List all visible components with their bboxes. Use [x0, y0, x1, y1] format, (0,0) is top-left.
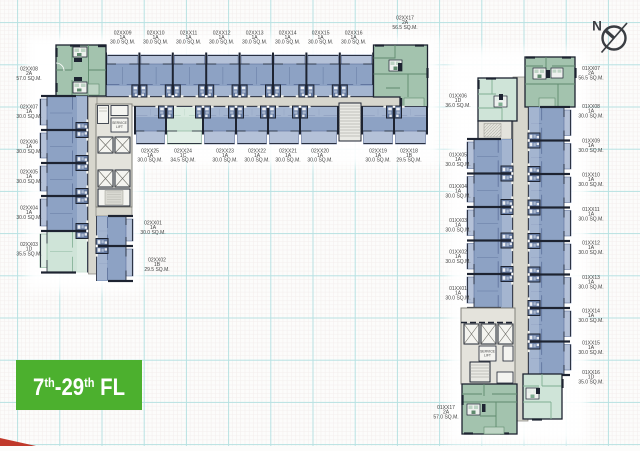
svg-text:30.0 SQ.M.: 30.0 SQ.M. — [242, 40, 267, 46]
svg-text:30.0 SQ.M.: 30.0 SQ.M. — [308, 40, 333, 46]
svg-text:30.0 SQ.M.: 30.0 SQ.M. — [445, 227, 470, 233]
svg-text:LIFT: LIFT — [484, 353, 491, 357]
svg-text:57.0 SQ.M.: 57.0 SQ.M. — [16, 76, 41, 82]
svg-text:30.0 SQ.M.: 30.0 SQ.M. — [16, 149, 41, 155]
svg-text:29.5 SQ.M.: 29.5 SQ.M. — [396, 158, 421, 164]
svg-text:LIFT: LIFT — [116, 125, 123, 129]
svg-text:30.0 SQ.M.: 30.0 SQ.M. — [578, 350, 603, 356]
svg-text:36.0 SQ.M.: 36.0 SQ.M. — [445, 103, 470, 109]
svg-text:30.0 SQ.M.: 30.0 SQ.M. — [578, 216, 603, 222]
svg-text:30.0 SQ.M.: 30.0 SQ.M. — [307, 158, 332, 164]
svg-text:30.0 SQ.M.: 30.0 SQ.M. — [445, 295, 470, 301]
svg-text:30.0 SQ.M.: 30.0 SQ.M. — [16, 215, 41, 221]
svg-text:57.0 SQ.M.: 57.0 SQ.M. — [433, 414, 458, 420]
svg-text:30.0 SQ.M.: 30.0 SQ.M. — [176, 40, 201, 46]
svg-text:30.0 SQ.M.: 30.0 SQ.M. — [244, 158, 269, 164]
svg-text:56.5 SQ.M.: 56.5 SQ.M. — [578, 75, 603, 81]
svg-text:30.0 SQ.M.: 30.0 SQ.M. — [143, 40, 168, 46]
svg-text:35.0 SQ.M.: 35.0 SQ.M. — [578, 379, 603, 385]
svg-text:30.0 SQ.M.: 30.0 SQ.M. — [445, 259, 470, 265]
svg-text:30.0 SQ.M.: 30.0 SQ.M. — [341, 40, 366, 46]
svg-text:30.0 SQ.M.: 30.0 SQ.M. — [578, 182, 603, 188]
svg-text:30.0 SQ.M.: 30.0 SQ.M. — [16, 114, 41, 120]
svg-text:30.0 SQ.M.: 30.0 SQ.M. — [16, 179, 41, 185]
svg-text:30.0 SQ.M.: 30.0 SQ.M. — [209, 40, 234, 46]
svg-text:30.0 SQ.M.: 30.0 SQ.M. — [445, 193, 470, 199]
svg-text:30.0 SQ.M.: 30.0 SQ.M. — [275, 158, 300, 164]
svg-text:30.0 SQ.M.: 30.0 SQ.M. — [275, 40, 300, 46]
svg-text:30.0 SQ.M.: 30.0 SQ.M. — [140, 230, 165, 236]
svg-text:56.5 SQ.M.: 56.5 SQ.M. — [392, 25, 417, 31]
svg-text:30.0 SQ.M.: 30.0 SQ.M. — [578, 148, 603, 154]
svg-text:30.0 SQ.M.: 30.0 SQ.M. — [365, 158, 390, 164]
svg-text:N: N — [592, 19, 602, 34]
svg-text:30.0 SQ.M.: 30.0 SQ.M. — [578, 284, 603, 290]
svg-text:35.5 SQ.M.: 35.5 SQ.M. — [16, 251, 41, 257]
svg-text:30.0 SQ.M.: 30.0 SQ.M. — [212, 158, 237, 164]
svg-text:30.0 SQ.M.: 30.0 SQ.M. — [578, 113, 603, 119]
svg-text:30.0 SQ.M.: 30.0 SQ.M. — [578, 318, 603, 324]
svg-text:30.0 SQ.M.: 30.0 SQ.M. — [110, 40, 135, 46]
svg-text:34.5 SQ.M.: 34.5 SQ.M. — [170, 158, 195, 164]
svg-text:30.0 SQ.M.: 30.0 SQ.M. — [137, 158, 162, 164]
svg-text:29.5 SQ.M.: 29.5 SQ.M. — [144, 267, 169, 273]
svg-text:30.0 SQ.M.: 30.0 SQ.M. — [578, 250, 603, 256]
svg-text:30.0 SQ.M.: 30.0 SQ.M. — [445, 162, 470, 168]
